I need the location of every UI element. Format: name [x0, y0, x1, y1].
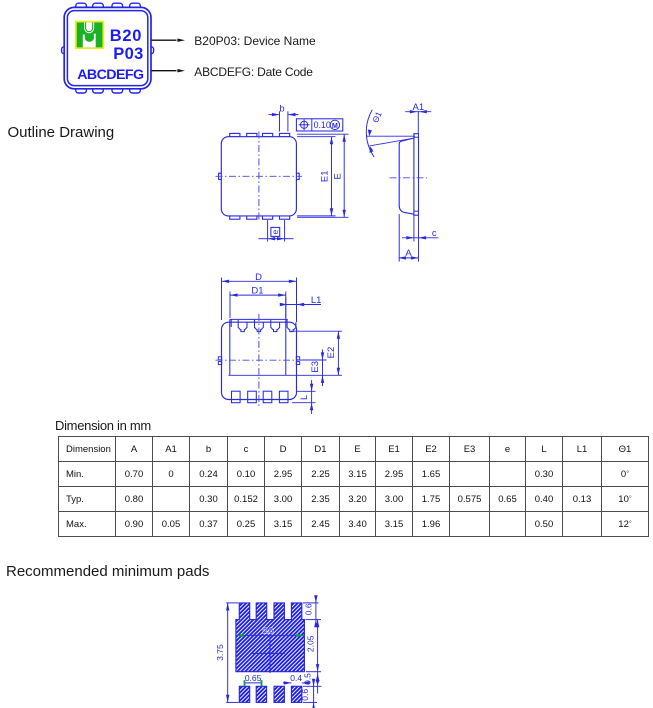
svg-text:0.65: 0.65 [245, 673, 262, 683]
svg-text:L: L [299, 395, 310, 400]
svg-text:b: b [279, 104, 284, 115]
svg-text:D1: D1 [251, 285, 263, 296]
svg-text:3.75: 3.75 [215, 644, 225, 661]
svg-text:E1: E1 [320, 170, 331, 182]
svg-text:A1: A1 [412, 102, 424, 113]
svg-text:L1: L1 [311, 295, 322, 306]
svg-text:0.10: 0.10 [314, 120, 331, 130]
svg-text:0.6: 0.6 [304, 603, 314, 615]
svg-text:D: D [255, 272, 262, 283]
svg-text:0.6: 0.6 [300, 689, 310, 701]
svg-text:e: e [270, 229, 280, 234]
svg-text:2.05: 2.05 [305, 635, 315, 652]
svg-text:c: c [432, 228, 437, 239]
svg-text:0.4: 0.4 [290, 673, 302, 683]
svg-text:ABCDEFG: ABCDEFG [77, 67, 144, 83]
svg-text:M: M [332, 121, 338, 130]
svg-text:P03: P03 [113, 45, 144, 63]
svg-text:B20: B20 [110, 27, 142, 45]
svg-text:2.6: 2.6 [263, 626, 273, 635]
svg-text:A: A [405, 248, 412, 259]
svg-text:0.5: 0.5 [303, 673, 313, 685]
svg-text:E3: E3 [310, 361, 321, 373]
svg-text:E2: E2 [326, 347, 337, 359]
svg-text:Θ1: Θ1 [370, 110, 384, 125]
svg-text:E: E [333, 173, 344, 179]
